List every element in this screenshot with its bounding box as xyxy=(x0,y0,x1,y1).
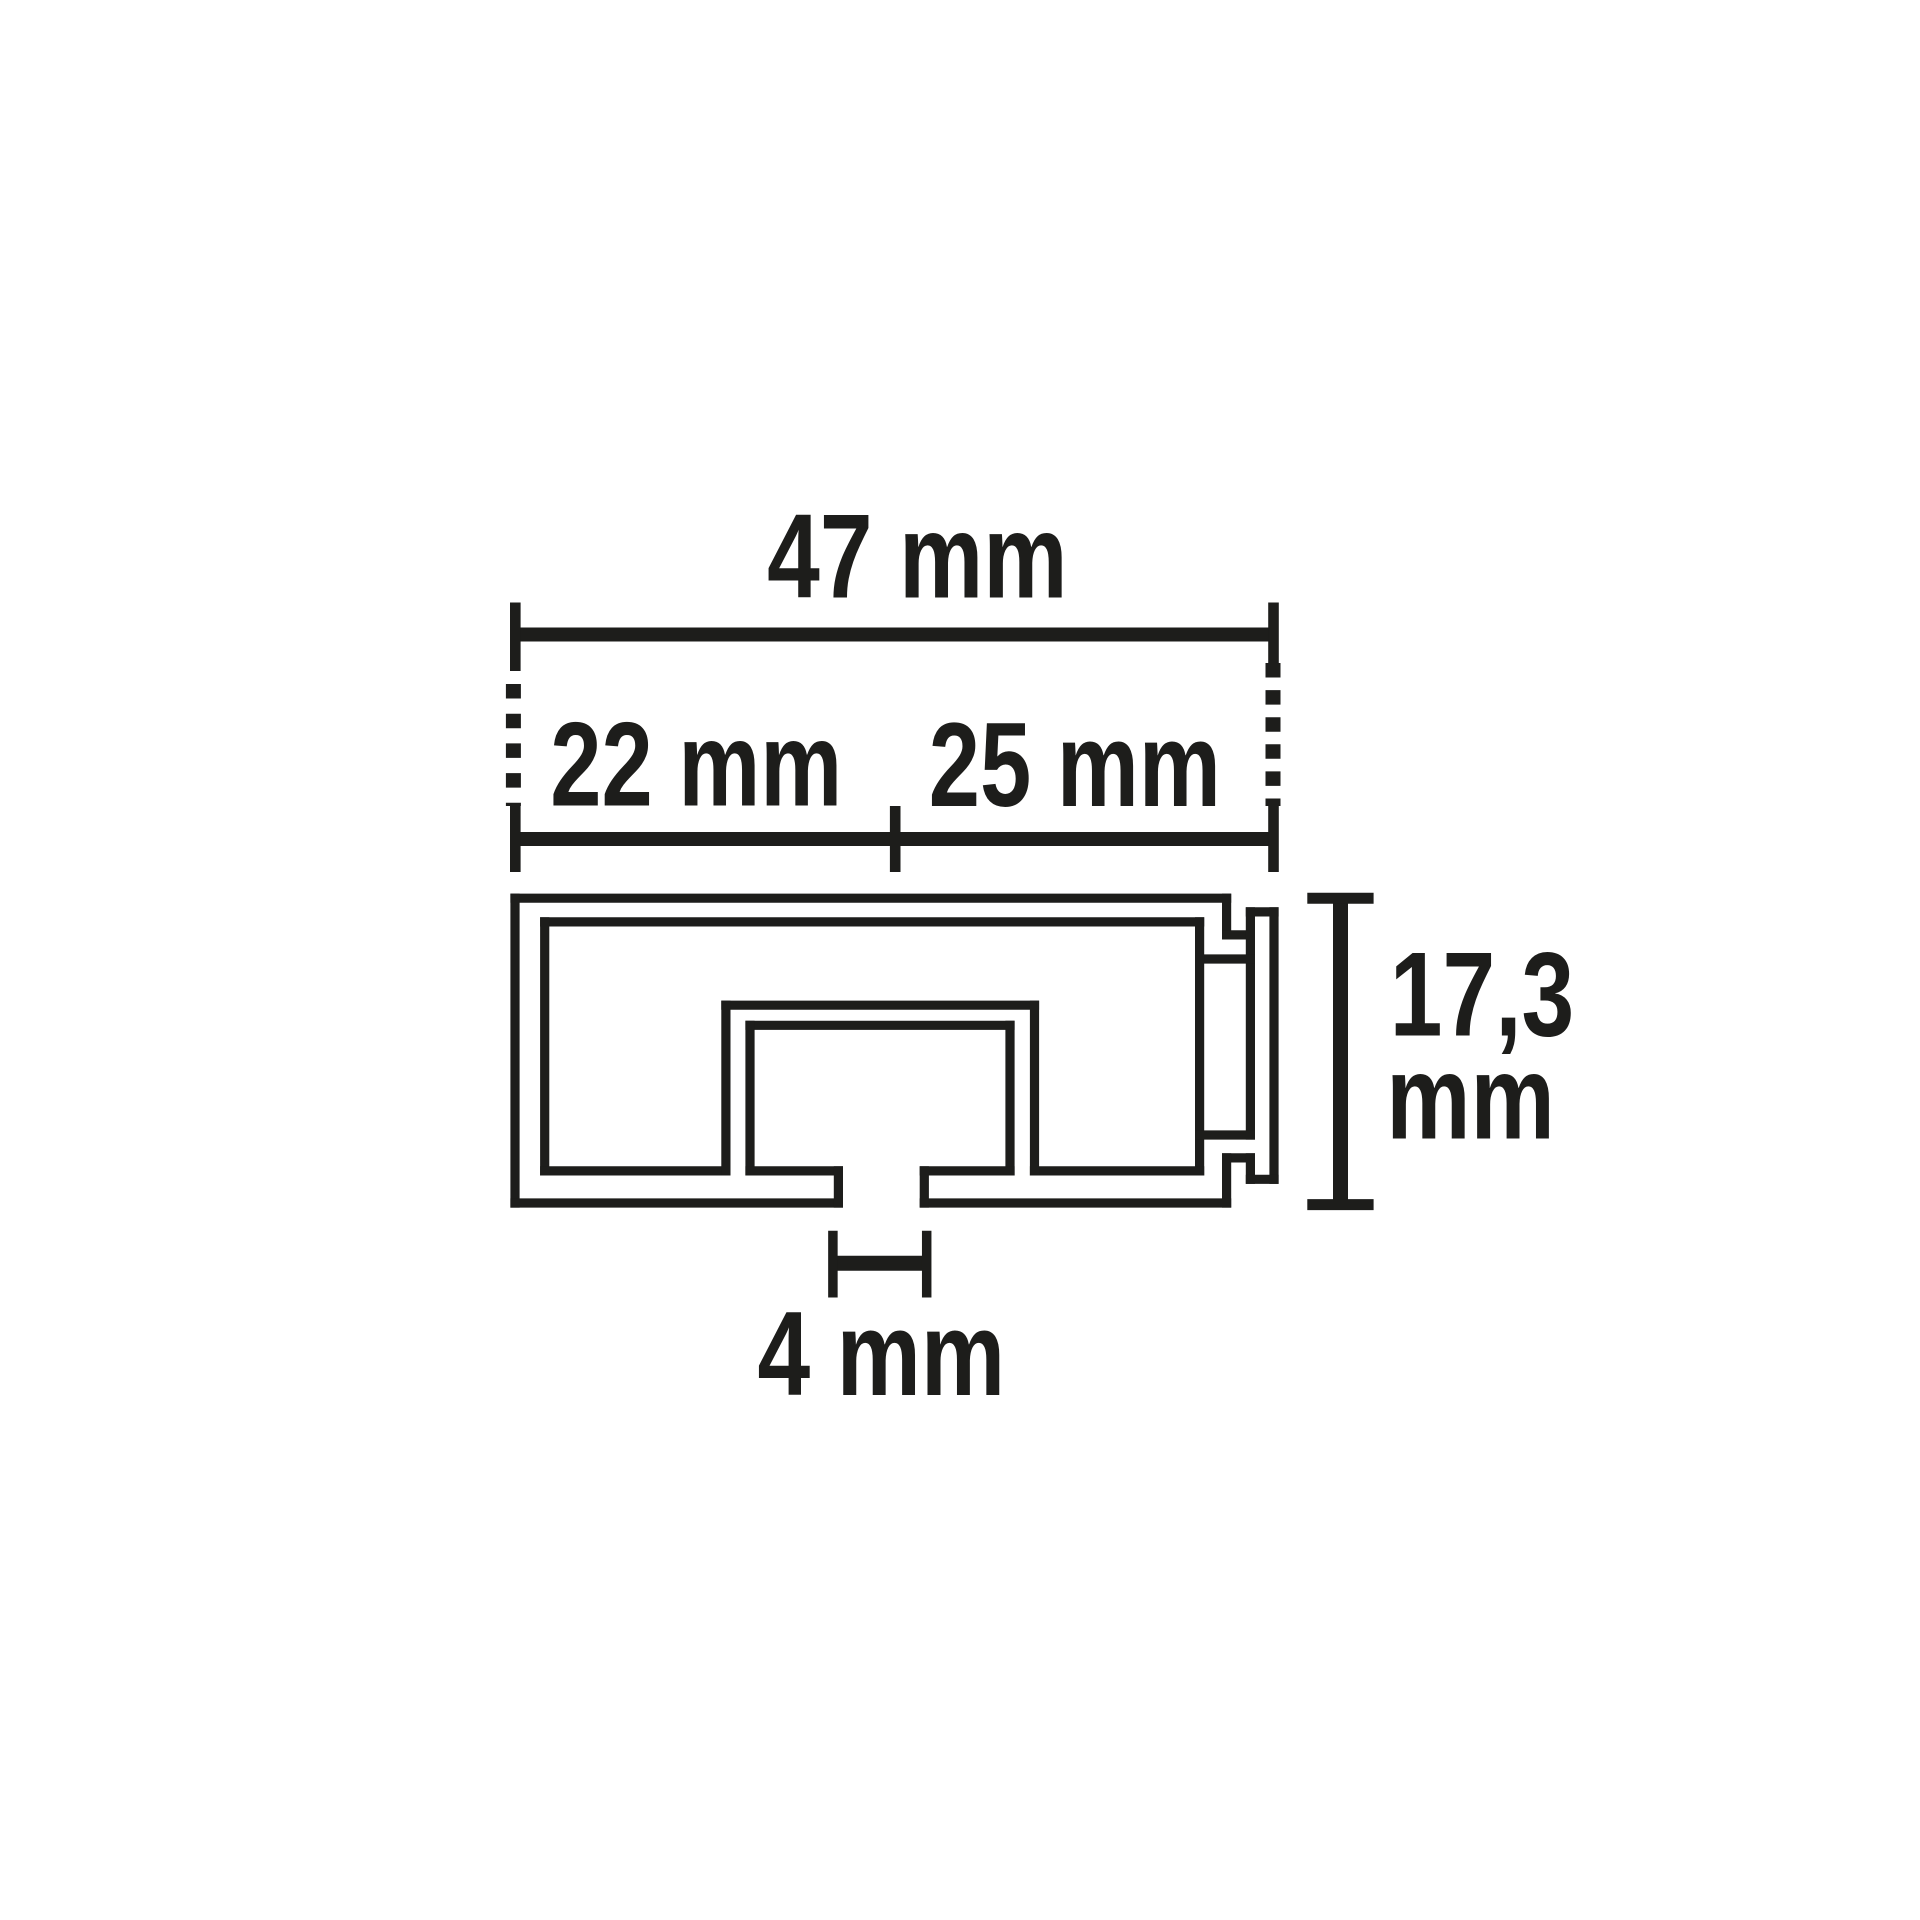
svg-text:22 mm: 22 mm xyxy=(550,697,842,832)
svg-text:25 mm: 25 mm xyxy=(929,697,1221,832)
svg-text:mm: mm xyxy=(1386,1030,1555,1164)
svg-text:47 mm: 47 mm xyxy=(767,489,1067,623)
svg-text:4 mm: 4 mm xyxy=(758,1286,1006,1420)
